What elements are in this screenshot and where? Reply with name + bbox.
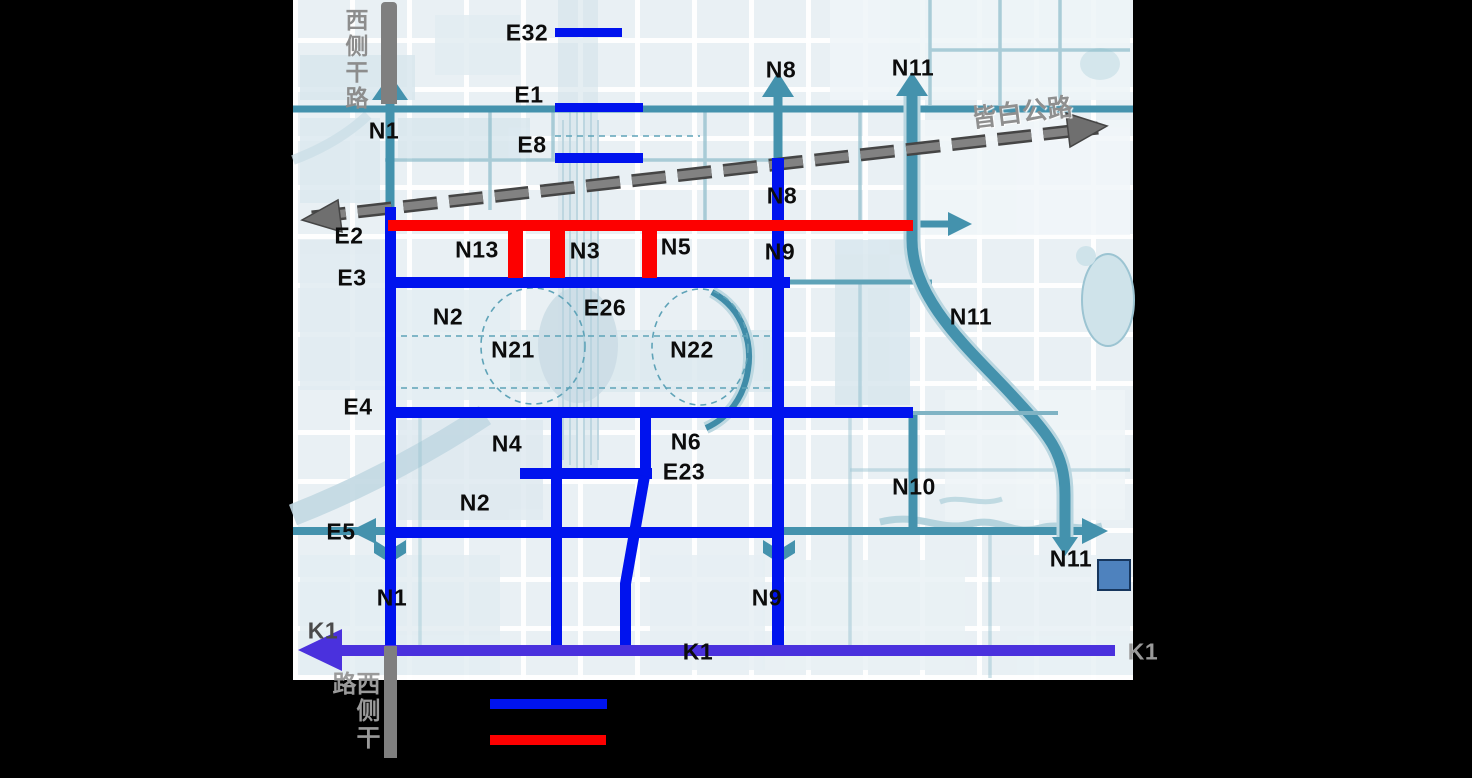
map-label-N8: N8 (766, 57, 796, 84)
map-label-E4: E4 (343, 394, 372, 421)
road-e8-bar (555, 153, 643, 163)
basemap-graphics (0, 0, 1472, 778)
map-label-N1: N1 (369, 118, 399, 145)
map-label-K1: K1 (1128, 639, 1158, 666)
map-label-N1: N1 (377, 585, 407, 612)
map-label-N4: N4 (492, 431, 522, 458)
road-n6-vertical (640, 412, 651, 478)
road-n4-vertical (551, 412, 562, 650)
map-label-N2: N2 (433, 304, 463, 331)
map-label-E1: E1 (514, 82, 543, 109)
map-label-N5: N5 (661, 234, 691, 261)
road-red-stub-n5 (642, 224, 657, 278)
map-label-K1: K1 (683, 639, 713, 666)
map-label-N11: N11 (1050, 546, 1092, 573)
road-e32-bar (555, 28, 622, 37)
west-trunk-road-top (381, 2, 397, 104)
map-label-N2: N2 (460, 490, 490, 517)
legend-red-line (490, 735, 606, 745)
map-label-E23: E23 (663, 459, 705, 486)
road-e1-bar (555, 103, 643, 112)
map-label-N9: N9 (752, 585, 782, 612)
road-e3 (385, 277, 790, 288)
road-n6-bottom (620, 583, 631, 650)
west-side-road-label-top: 西侧干路 (343, 8, 366, 112)
map-label-N22: N22 (670, 337, 714, 364)
map-label-N6: N6 (671, 429, 701, 456)
map-label-N3: N3 (570, 238, 600, 265)
map-label-N10: N10 (892, 474, 936, 501)
map-label-E32: E32 (506, 20, 548, 47)
road-e5 (390, 527, 780, 538)
map-label-K1: K1 (308, 618, 338, 645)
road-n8-n9 (772, 158, 784, 654)
road-red-stub-n13 (508, 224, 523, 278)
west-trunk-road-bottom (384, 646, 397, 758)
road-planning-map: 西侧干路 西侧干路 E32E1E8N1N8N11皆白公路E2N13N3N5N8N… (0, 0, 1472, 778)
road-red-stub-n3 (550, 224, 565, 278)
map-label-E5: E5 (326, 519, 355, 546)
road-e23 (520, 468, 652, 479)
map-label-E2: E2 (334, 223, 363, 250)
map-label-N13: N13 (455, 237, 499, 264)
map-label-N11: N11 (892, 55, 934, 82)
map-label-N9: N9 (765, 239, 795, 266)
blue-square-marker (1097, 559, 1131, 591)
road-k1 (338, 645, 1115, 656)
legend-blue-line (490, 699, 607, 709)
map-label-E3: E3 (337, 265, 366, 292)
west-side-road-label-bottom: 西侧干路 (329, 671, 377, 778)
map-label-E8: E8 (517, 132, 546, 159)
map-label-E26: E26 (584, 295, 626, 322)
map-label-N8: N8 (767, 183, 797, 210)
map-label-N11: N11 (950, 304, 992, 331)
map-label-N21: N21 (491, 337, 535, 364)
